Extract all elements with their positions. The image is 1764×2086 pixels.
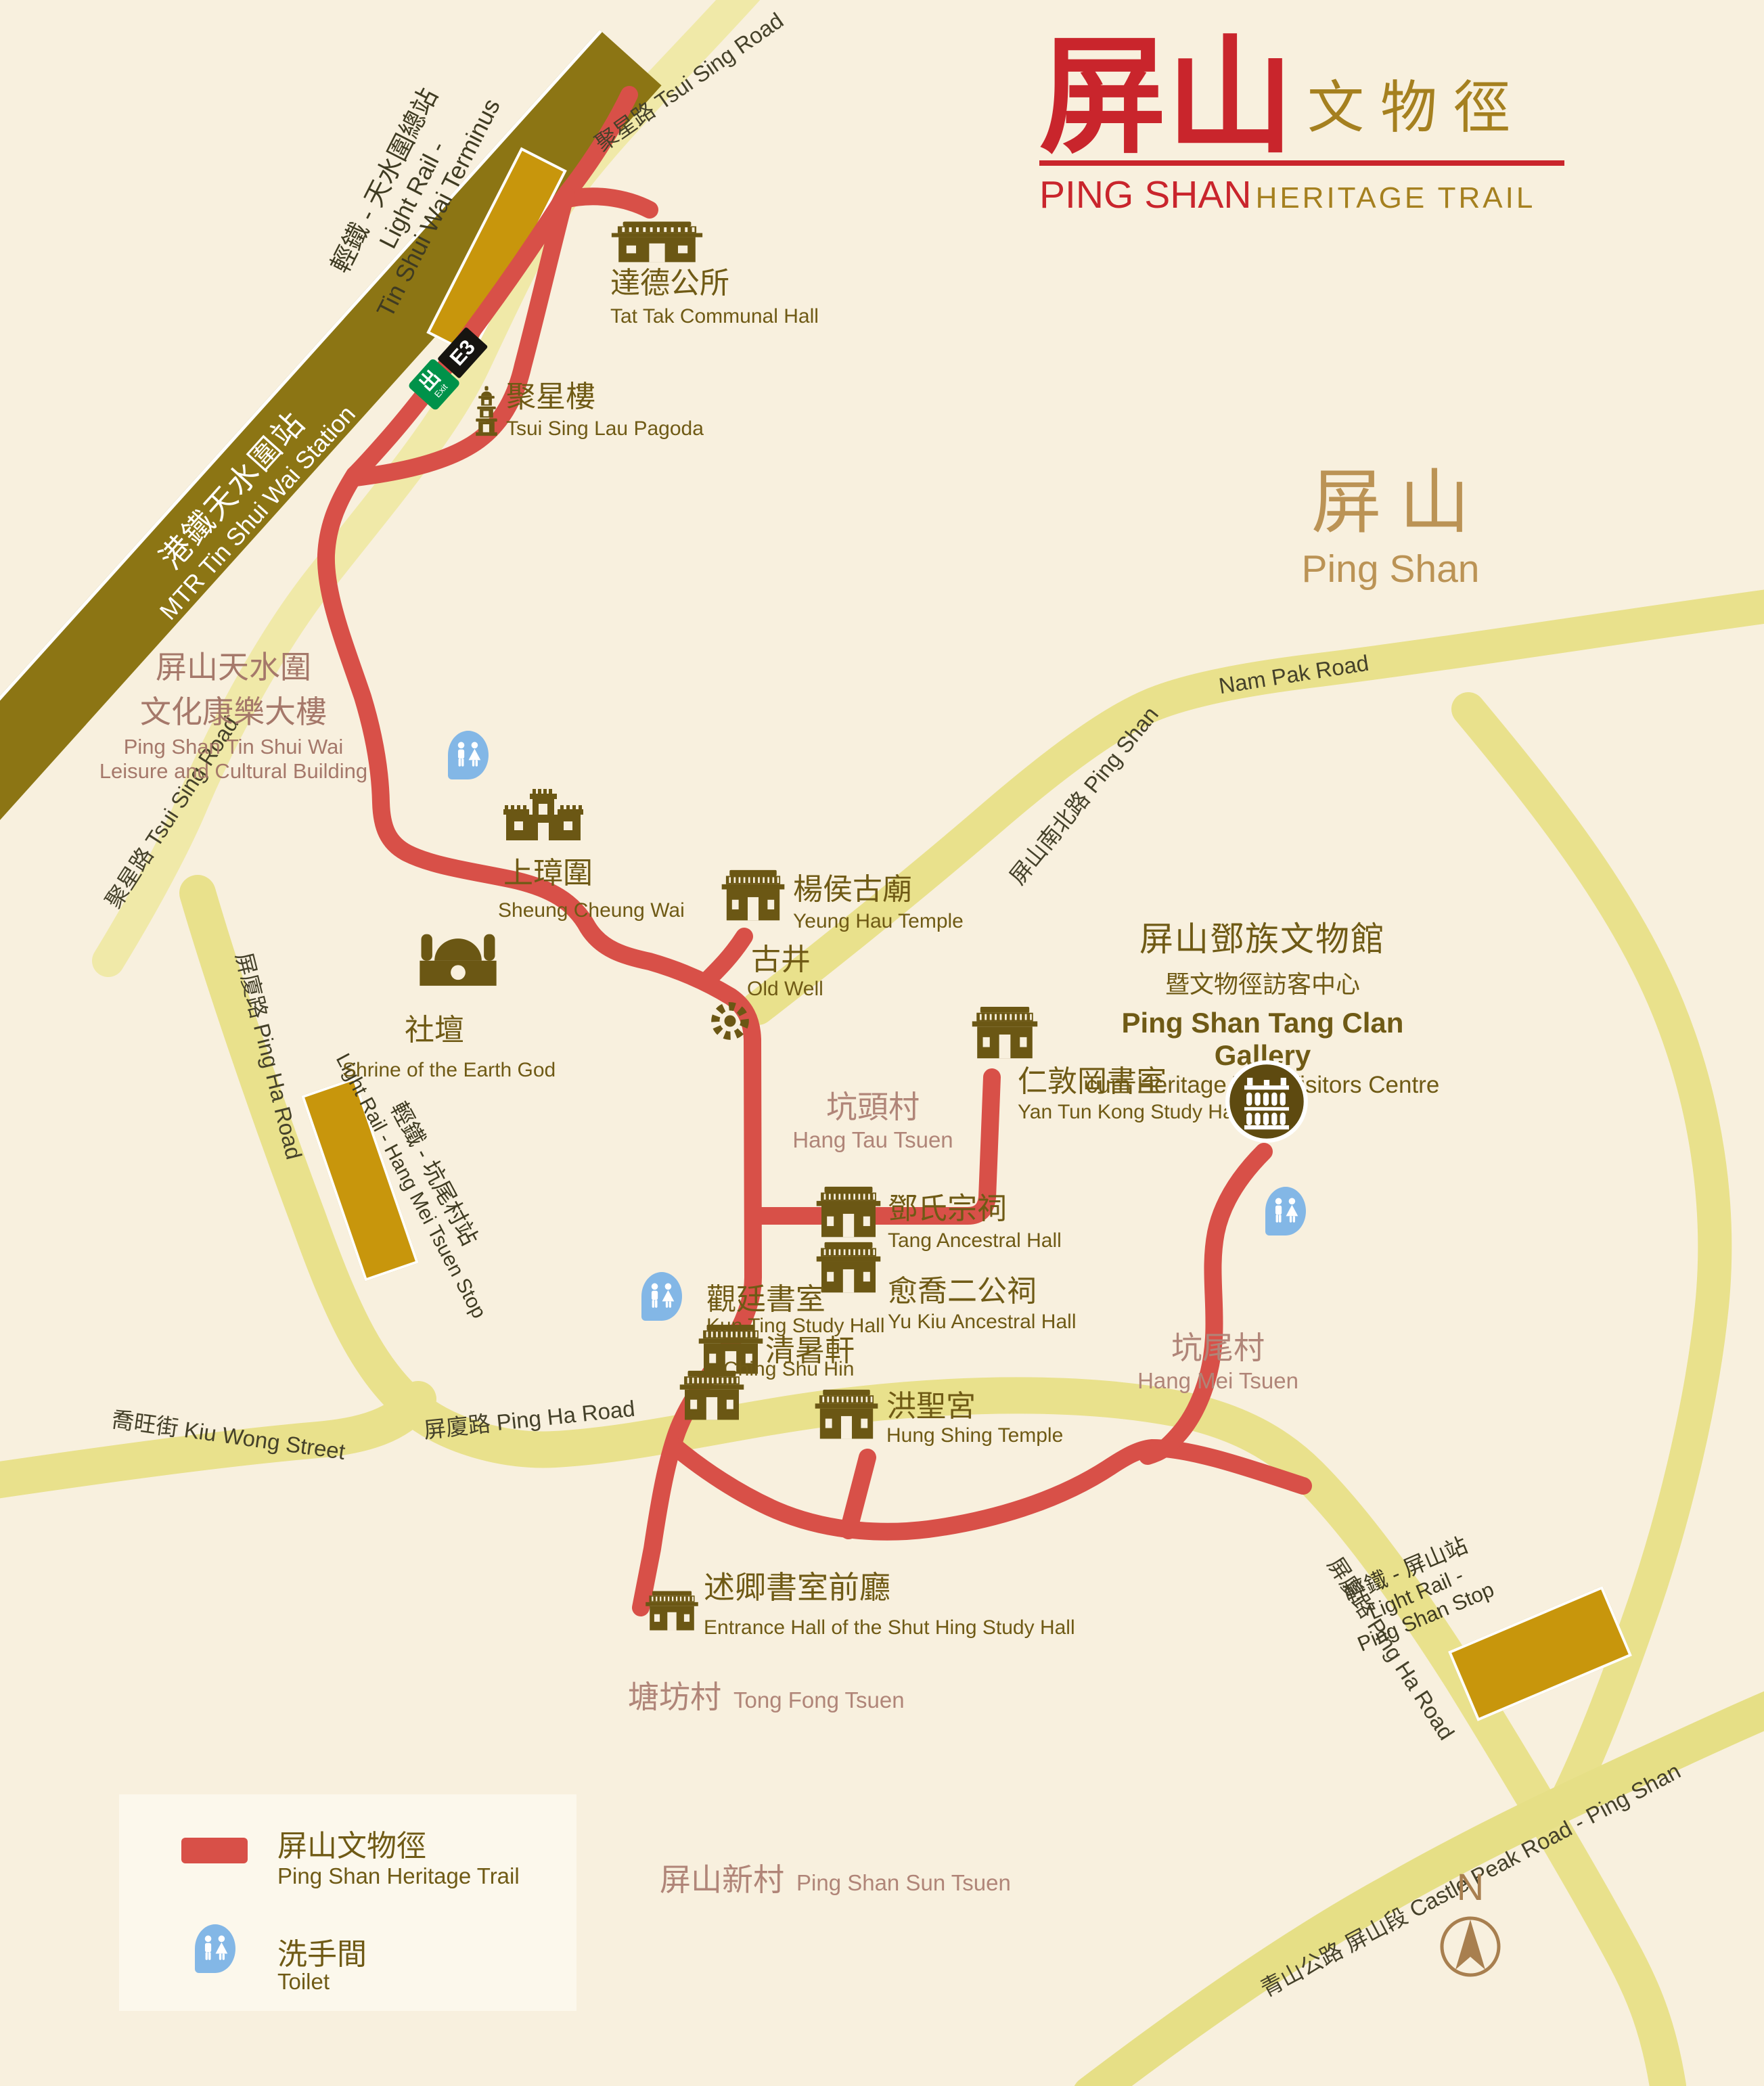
heritage-trail-hung-shing-spur — [849, 1457, 867, 1531]
legend-trail-zh: 屏山文物徑 — [277, 1821, 426, 1865]
exit-code: E3 — [445, 335, 480, 370]
village-hang-mei: 坑尾村 Hang Mei Tsuen — [1120, 1323, 1316, 1394]
gallery-label-zh1: 屏山鄧族文物館 — [1080, 912, 1445, 961]
title-zh-main: 屏山 — [1039, 38, 1294, 159]
heritage-trail-yeung-hau-spur — [705, 936, 744, 982]
leisure-building-label: 屏山天水圍 文化康樂大樓 Ping Shan Tin Shui Wai Leis… — [88, 643, 379, 784]
ching-shu-hin-icon — [678, 1369, 746, 1424]
heritage-trail-main — [326, 475, 753, 1608]
sheung-cheung-wai-icon — [501, 788, 586, 851]
legend-toilet-en: Toilet — [277, 1969, 330, 1995]
shrine-label-en: Shrine of the Earth God — [342, 1060, 556, 1081]
village-sun-tsuen: 屏山新村 Ping Shan Sun Tsuen — [660, 1855, 1011, 1900]
gallery-icon — [1223, 1058, 1310, 1145]
region-label: 屏 山 Ping Shan — [1282, 468, 1499, 591]
leisure-building-zh1: 屏山天水圍 — [88, 643, 379, 687]
village-sun-tsuen-en: Ping Shan Sun Tsuen — [796, 1870, 1011, 1896]
map-canvas: { "title": { "zh_main": "屏山", "zh_sub": … — [0, 0, 1764, 2086]
yu-kiu-hall-label-zh: 愈喬二公祠 — [888, 1276, 1037, 1307]
hung-shing-icon — [813, 1388, 880, 1443]
toilet-icon-2 — [641, 1272, 682, 1321]
region-label-zh: 屏 山 — [1282, 468, 1499, 539]
sheung-cheung-wai-label-zh: 上璋圍 — [503, 858, 593, 889]
shrine-icon — [417, 924, 499, 1000]
title-zh-sub: 文物徑 — [1307, 62, 1526, 144]
shut-hing-label-en: Entrance Hall of the Shut Hing Study Hal… — [704, 1617, 1075, 1639]
village-hang-tau-en: Hang Tau Tsuen — [785, 1127, 961, 1153]
village-tong-fong-zh: 塘坊村 — [628, 1673, 721, 1717]
heritage-trail-tat-tak-spur — [562, 196, 650, 210]
tang-ancestral-hall-label-zh: 鄧氏宗祠 — [888, 1194, 1007, 1225]
village-hang-tau-zh: 坑頭村 — [785, 1083, 961, 1127]
yeung-hau-label-en: Yeung Hau Temple — [793, 911, 964, 932]
village-sun-tsuen-zh: 屏山新村 — [660, 1855, 784, 1900]
tang-ancestral-hall-icon — [815, 1185, 882, 1241]
region-label-en: Ping Shan — [1282, 547, 1499, 591]
tat-tak-label-zh: 達德公所 — [610, 268, 729, 299]
village-hang-tau: 坑頭村 Hang Tau Tsuen — [785, 1083, 961, 1153]
leisure-building-en1: Ping Shan Tin Shui Wai — [88, 735, 379, 759]
legend-panel: 屏山文物徑 Ping Shan Heritage Trail 洗手間 Toile… — [119, 1794, 576, 2011]
shut-hing-icon — [644, 1590, 700, 1633]
pagoda-label-en: Tsui Sing Lau Pagoda — [506, 418, 704, 440]
leisure-building-zh2: 文化康樂大樓 — [88, 687, 379, 732]
tat-tak-icon — [609, 221, 705, 265]
yeung-hau-icon — [720, 869, 786, 924]
toilet-icon-1 — [448, 731, 489, 779]
yu-kiu-hall-label-en: Yu Kiu Ancestral Hall — [888, 1311, 1076, 1333]
legend-trail-swatch — [181, 1838, 248, 1863]
compass-n-label: N — [1433, 1865, 1508, 1909]
tat-tak-label-en: Tat Tak Communal Hall — [610, 306, 819, 327]
heritage-trail-south-branch — [673, 1445, 1303, 1532]
yan-tun-kong-label-en: Yan Tun Kong Study Hall — [1018, 1102, 1243, 1123]
pagoda-label-zh: 聚星樓 — [506, 382, 595, 413]
hung-shing-label-zh: 洪聖宮 — [886, 1391, 976, 1422]
toilet-icon-3 — [1265, 1187, 1306, 1235]
compass-icon — [1438, 1914, 1503, 1979]
title-en-main: PING SHAN — [1039, 173, 1252, 217]
village-hang-mei-zh: 坑尾村 — [1120, 1323, 1316, 1368]
leisure-building-en2: Leisure and Cultural Building — [88, 759, 379, 784]
yan-tun-kong-icon — [970, 1005, 1039, 1062]
shrine-label-zh: 社壇 — [405, 1015, 464, 1046]
village-hang-mei-en: Hang Mei Tsuen — [1120, 1368, 1316, 1394]
pagoda-icon — [472, 373, 501, 452]
map-title: 屏山 文物徑 PING SHAN HERITAGE TRAIL — [1039, 38, 1564, 217]
old-well-label-zh: 古井 — [751, 945, 811, 976]
gallery-label-zh2: 暨文物徑訪客中心 — [1080, 965, 1445, 1000]
kun-ting-label-zh: 觀廷書室 — [706, 1284, 826, 1315]
old-well-icon — [708, 999, 752, 1043]
legend-trail-en: Ping Shan Heritage Trail — [277, 1863, 520, 1889]
old-well-label-en: Old Well — [747, 978, 823, 1000]
yeung-hau-label-zh: 楊侯古廟 — [793, 874, 912, 905]
sheung-cheung-wai-label-en: Sheung Cheung Wai — [498, 900, 685, 922]
village-tong-fong: 塘坊村 Tong Fong Tsuen — [628, 1673, 905, 1717]
legend-toilet-zh: 洗手間 — [277, 1930, 367, 1973]
hung-shing-label-en: Hung Shing Temple — [886, 1425, 1063, 1447]
title-en-sub: HERITAGE TRAIL — [1256, 181, 1536, 215]
shut-hing-label-zh: 述卿書室前廳 — [704, 1571, 890, 1604]
legend-toilet-icon — [195, 1924, 235, 1973]
heritage-trail-gallery-arc — [1148, 1152, 1264, 1456]
tang-ancestral-hall-label-en: Tang Ancestral Hall — [888, 1230, 1062, 1252]
village-tong-fong-en: Tong Fong Tsuen — [733, 1687, 905, 1713]
compass: N — [1433, 1865, 1508, 1982]
